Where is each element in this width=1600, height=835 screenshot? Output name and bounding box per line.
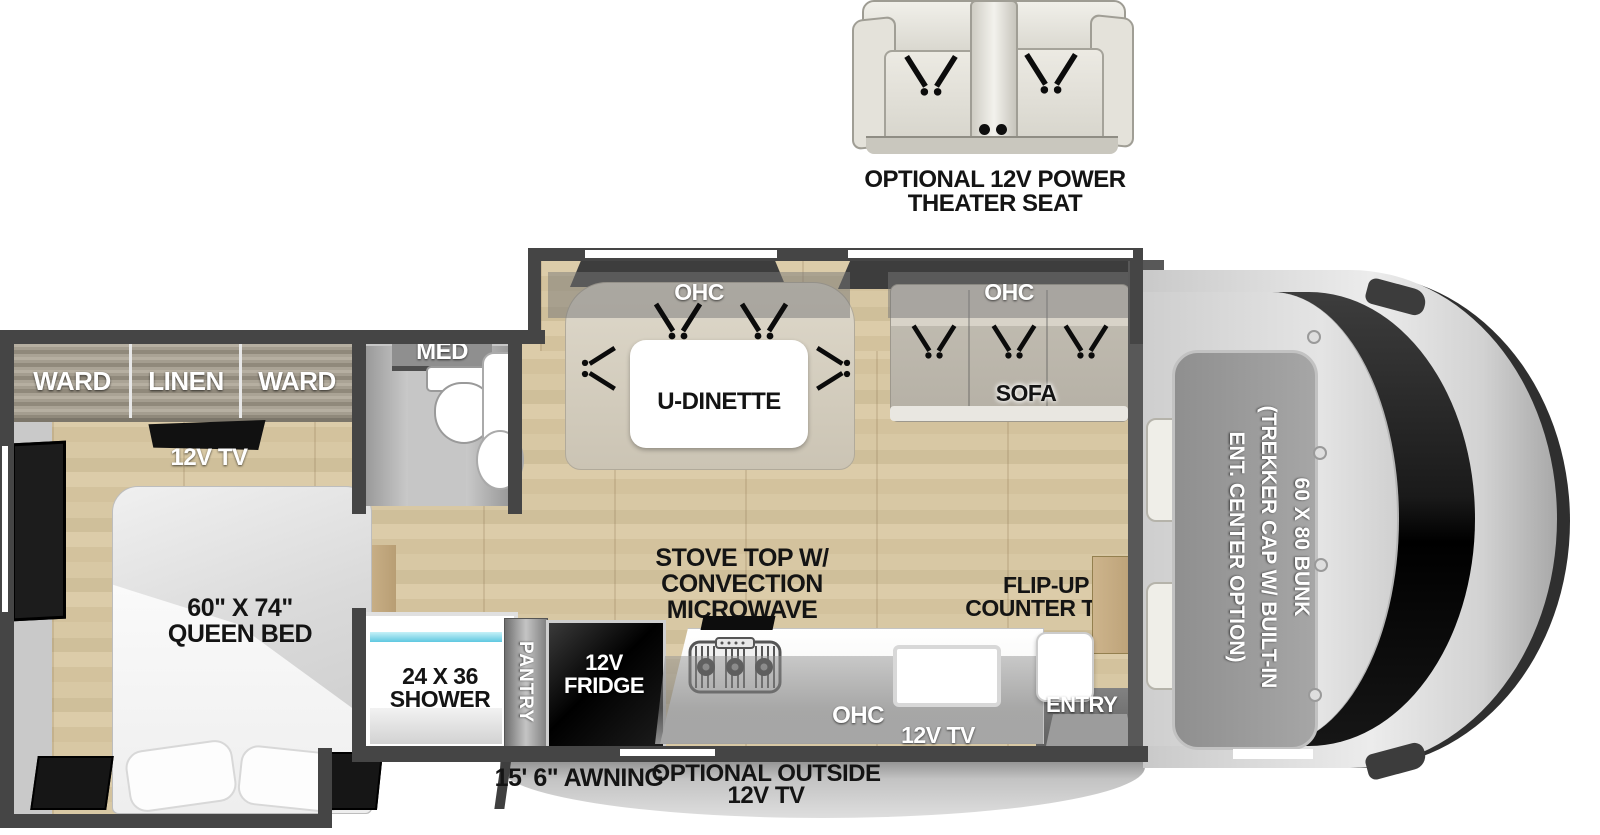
- door-strip: [1233, 749, 1313, 759]
- wall-shower-left: [352, 608, 366, 753]
- wall-bedroom-bottom: [0, 814, 332, 828]
- window-strip: [2, 446, 8, 612]
- ward-right-label: WARD: [258, 366, 335, 397]
- cabinet-divider: [239, 344, 242, 418]
- shower-label-2: SHOWER: [390, 686, 491, 713]
- sofa-label: SOFA: [996, 380, 1057, 407]
- seatbelt-icon: [736, 300, 792, 344]
- sofa-front-lip: [890, 406, 1128, 421]
- ward-left-label: WARD: [33, 366, 110, 397]
- wall-bedroom-right-lower: [318, 748, 332, 828]
- microwave-vent: [701, 616, 776, 630]
- counter-tv-panel: [893, 645, 1001, 707]
- seatbelt-icon: [1020, 50, 1082, 99]
- wall-main-bottom: [352, 746, 1148, 762]
- seatbelt-icon: [650, 300, 706, 344]
- cap-rivet: [1313, 446, 1327, 460]
- bedroom-window-left: [12, 441, 66, 622]
- bunk-label: 60 X 80 BUNK (TREKKER CAP W/ BUILT-IN EN…: [1167, 357, 1317, 737]
- seatbelt-icon: [578, 342, 619, 394]
- window-strip: [848, 250, 1133, 258]
- cupholder: [996, 124, 1007, 135]
- rv-floorplan: 15' 6" AWNING OPTIONAL OUTSIDE 12V TV WA…: [0, 0, 1600, 835]
- fridge-label-2: FRIDGE: [564, 673, 644, 699]
- theater-front-lip: [866, 136, 1118, 154]
- bed-label-2: QUEEN BED: [168, 620, 312, 649]
- seatbelt-icon: [900, 52, 962, 101]
- wall-bath-right: [508, 330, 522, 514]
- wall-slideout-right: [1130, 248, 1143, 344]
- bed-label-1: 60" X 74": [187, 594, 292, 623]
- door-strip: [620, 749, 715, 756]
- outside-tv-label-2: 12V TV: [727, 782, 804, 810]
- seatbelt-icon: [1060, 322, 1112, 363]
- stove-label-1: STOVE TOP W/: [655, 544, 828, 573]
- bedroom-tv-label: 12V TV: [170, 444, 247, 472]
- linen-label: LINEN: [148, 366, 224, 397]
- entry-label: ENTRY: [1046, 692, 1117, 718]
- entry-step: [1046, 714, 1134, 746]
- shower-glass: [370, 632, 502, 642]
- wall-bath-left: [352, 330, 366, 514]
- pantry-label: PANTRY: [514, 622, 536, 742]
- stove-label-2: CONVECTION: [661, 570, 823, 599]
- wall-slideout-left: [528, 248, 541, 344]
- sofa-ohc-label: OHC: [984, 279, 1034, 306]
- bunk-label-line2: (TREKKER CAP W/ BUILT-IN: [1252, 357, 1285, 737]
- seatbelt-icon: [814, 342, 855, 394]
- shower-base: [370, 708, 502, 744]
- theater-seat-label-2: THEATER SEAT: [908, 190, 1082, 218]
- theater-console: [970, 0, 1018, 154]
- kitchen-ohc-label: OHC: [832, 702, 884, 730]
- bunk-label-line3: ENT. CENTER OPTION): [1219, 357, 1252, 737]
- cap-rivet: [1314, 558, 1328, 572]
- kitchen-tv-label: 12V TV: [901, 722, 975, 749]
- wall-top: [0, 330, 545, 344]
- cap-rivet: [1308, 688, 1322, 702]
- cupholder: [979, 124, 990, 135]
- seatbelt-icon: [908, 322, 960, 363]
- bunk-label-line1: 60 X 80 BUNK: [1284, 357, 1317, 737]
- cap-rivet: [1307, 330, 1321, 344]
- theater-seat: [852, 0, 1132, 158]
- dinette-label: U-DINETTE: [657, 388, 781, 416]
- seatbelt-icon: [988, 322, 1040, 363]
- cabinet-divider: [129, 344, 132, 418]
- bedroom-window-bottom-left: [30, 756, 114, 810]
- window-strip: [585, 250, 777, 258]
- awning-label: 15' 6" AWNING: [495, 764, 664, 793]
